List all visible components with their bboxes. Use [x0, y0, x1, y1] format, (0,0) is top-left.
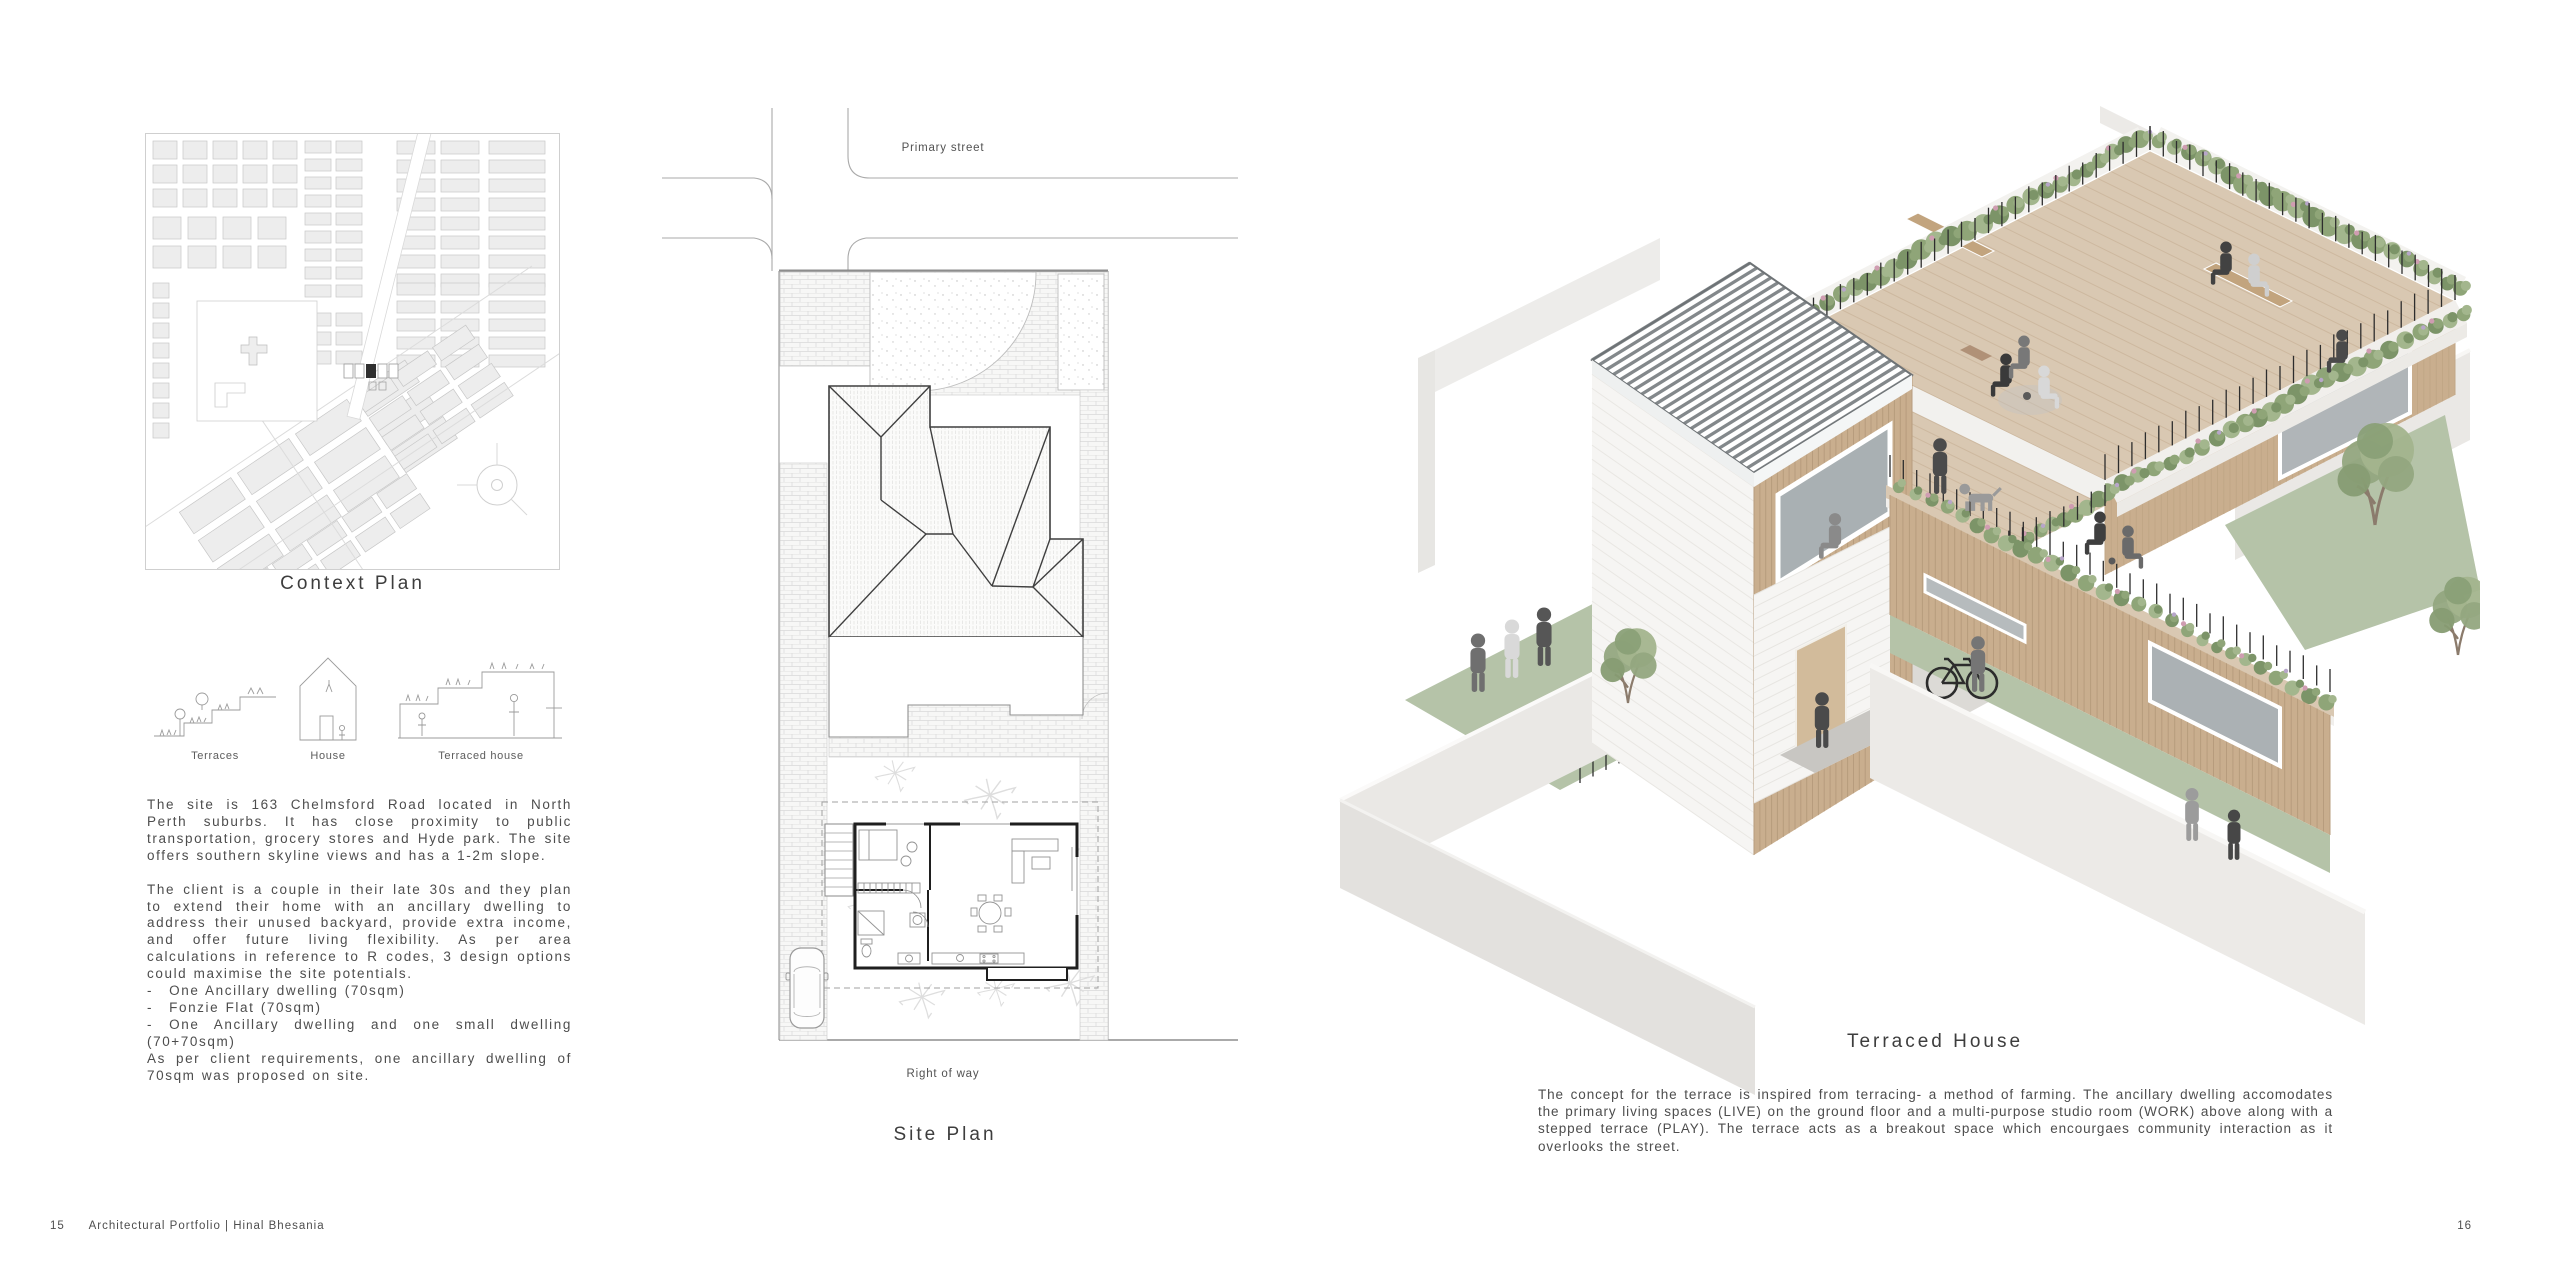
house-sketch	[286, 648, 370, 748]
house-sketch-label: House	[286, 750, 370, 762]
footer-portfolio-text: Architectural Portfolio | Hinal Bhesania	[89, 1220, 325, 1232]
site-description: The site is 163 Chelmsford Road located …	[147, 797, 572, 1085]
terraced-house-title: Terraced House	[1700, 1031, 2170, 1053]
street-lines	[662, 108, 1238, 271]
site-plan-drawing	[660, 95, 1240, 1105]
page-number-right: 16	[2430, 1220, 2472, 1232]
site-highlight	[366, 364, 376, 378]
option-2-text: Fonzie Flat (70sqm)	[169, 1000, 321, 1015]
map-blocks	[153, 141, 297, 207]
portfolio-spread: Context Plan	[0, 0, 2560, 1280]
paragraph-conclusion: As per client requirements, one ancillar…	[147, 1051, 572, 1085]
option-1-text: One Ancillary dwelling (70sqm)	[169, 983, 405, 998]
paragraph-site: The site is 163 Chelmsford Road located …	[147, 797, 572, 865]
car	[786, 948, 828, 1028]
paragraph-client: The client is a couple in their late 30s…	[147, 882, 572, 983]
bullet-dash: -	[147, 1017, 153, 1034]
person-sitting	[2085, 512, 2106, 555]
context-plan-map	[145, 133, 560, 570]
option-3-text: One Ancillary dwelling and one small dwe…	[147, 1017, 572, 1049]
context-plan-label: Context Plan	[145, 573, 560, 595]
terraces-sketch-label: Terraces	[150, 750, 280, 762]
terraced-house-description: The concept for the terrace is inspired …	[1538, 1086, 2333, 1155]
bullet-dash: -	[147, 1000, 153, 1017]
terraced-house-sketch-label: Terraced house	[396, 750, 566, 762]
floor-plan	[822, 802, 1098, 988]
option-1: -One Ancillary dwelling (70sqm)	[147, 983, 572, 1000]
park-area	[197, 301, 317, 421]
terraced-house-illustration	[1330, 95, 2480, 1105]
option-3: -One Ancillary dwelling and one small dw…	[147, 1017, 572, 1051]
option-2: -Fonzie Flat (70sqm)	[147, 1000, 572, 1017]
right-of-way-label: Right of way	[858, 1068, 1028, 1080]
page-number-left: 15	[50, 1220, 65, 1232]
footer-left: 15 Architectural Portfolio | Hinal Bhesa…	[50, 1220, 325, 1232]
bullet-dash: -	[147, 983, 153, 1000]
terraced-house-sketch	[396, 646, 566, 746]
existing-house-roof	[829, 386, 1083, 737]
site-plan-title: Site Plan	[810, 1124, 1080, 1146]
terraces-sketch	[150, 646, 280, 746]
